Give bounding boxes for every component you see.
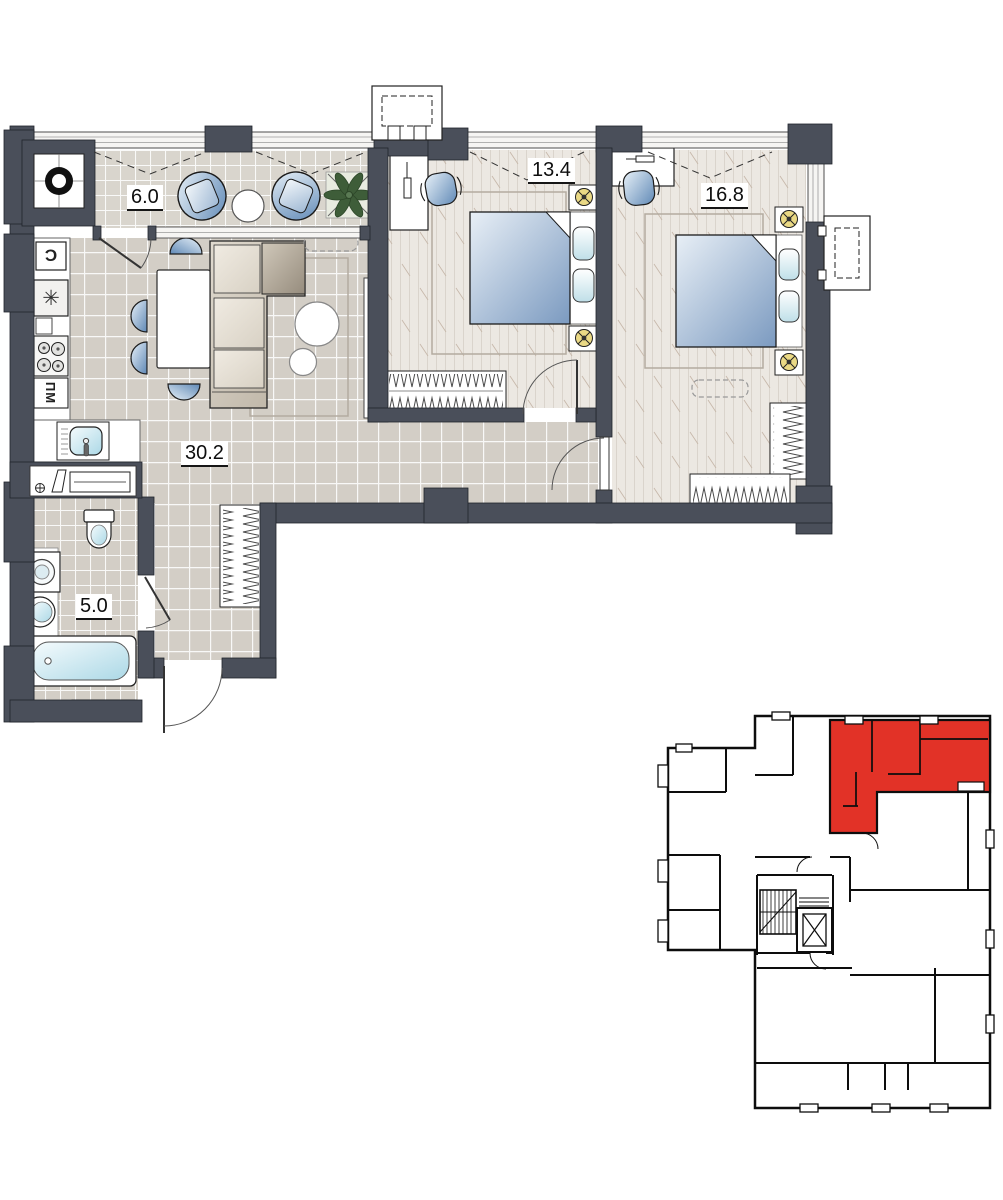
nightstand-lamp bbox=[775, 207, 803, 232]
nightstand-lamp bbox=[775, 350, 803, 375]
room-area-label-bedroom-1: 13.4 bbox=[528, 158, 575, 184]
room-area-label-living: 30.2 bbox=[181, 441, 228, 467]
freezer-symbol-icon: ✳ bbox=[34, 280, 68, 316]
nightstand-lamp bbox=[569, 326, 598, 351]
wardrobe-bedroom-2-vertical bbox=[770, 403, 808, 479]
room-area-label-balcony: 6.0 bbox=[127, 185, 163, 211]
entry-door bbox=[164, 666, 222, 733]
pillow bbox=[573, 227, 594, 260]
bed-1 bbox=[470, 212, 598, 324]
dining-table bbox=[157, 270, 210, 368]
toilet bbox=[84, 510, 114, 548]
coffee-table-small bbox=[290, 349, 317, 376]
floor-plan-canvas bbox=[0, 0, 1003, 1200]
desk-1 bbox=[390, 150, 428, 230]
wardrobe-bedroom-2-horizontal bbox=[690, 474, 790, 506]
ac-unit-top bbox=[372, 86, 442, 140]
coffee-table-large bbox=[295, 302, 339, 346]
entry-shelf-cabinet bbox=[30, 466, 136, 496]
room-area-label-bedroom-2: 16.8 bbox=[701, 183, 748, 209]
bathtub bbox=[26, 636, 136, 686]
hall-wardrobe bbox=[220, 505, 262, 607]
room-area-label-bathroom: 5.0 bbox=[76, 594, 112, 620]
kitchen-sink bbox=[57, 422, 109, 460]
locator-stairs bbox=[760, 890, 796, 934]
stove bbox=[34, 336, 68, 376]
pillow bbox=[779, 249, 799, 280]
locator-elevator bbox=[797, 898, 832, 952]
bed-2 bbox=[676, 235, 802, 347]
fridge-symbol-icon: Ɔ bbox=[36, 242, 66, 270]
plant bbox=[324, 171, 374, 219]
vent-shaft-symbol bbox=[34, 154, 84, 208]
ac-unit-right bbox=[818, 216, 870, 290]
pillow bbox=[573, 269, 594, 302]
balcony-inner-window bbox=[150, 227, 368, 238]
floor-plan-page: 6.0 13.4 16.8 30.2 5.0 ПМ Ɔ ✳ bbox=[0, 0, 1003, 1200]
building-locator bbox=[658, 712, 994, 1112]
balcony-table bbox=[232, 190, 264, 222]
dishwasher-label: ПМ bbox=[36, 376, 66, 410]
nightstand-lamp bbox=[569, 185, 598, 210]
pillow bbox=[779, 291, 799, 322]
wardrobe-bedroom-1 bbox=[386, 371, 506, 411]
